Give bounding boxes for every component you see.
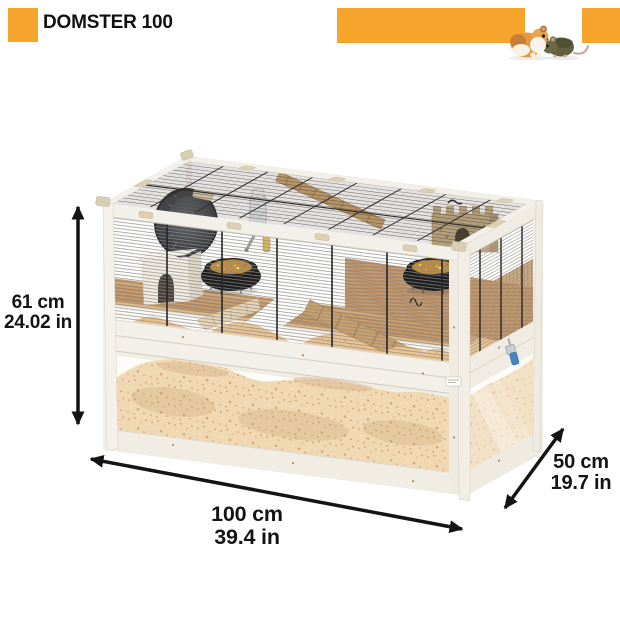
- product-dimension-sheet: DOMSTER 100: [0, 0, 620, 620]
- product-label-sticker: [446, 377, 461, 386]
- height-cm: 61 cm: [2, 293, 74, 313]
- width-cm: 100 cm: [180, 503, 314, 526]
- depth-cm: 50 cm: [542, 452, 620, 473]
- depth-inches: 19.7 in: [542, 473, 620, 494]
- front-right-post: [458, 247, 470, 501]
- height-inches: 24.02 in: [2, 313, 74, 333]
- corner-clip-front-right: [451, 241, 466, 252]
- corner-clip-front-left: [95, 196, 110, 207]
- height-dimension-label: 61 cm 24.02 in: [2, 293, 74, 334]
- depth-dimension-label: 50 cm 19.7 in: [542, 452, 620, 495]
- width-dimension-label: 100 cm 39.4 in: [180, 503, 314, 549]
- width-inches: 39.4 in: [180, 526, 314, 549]
